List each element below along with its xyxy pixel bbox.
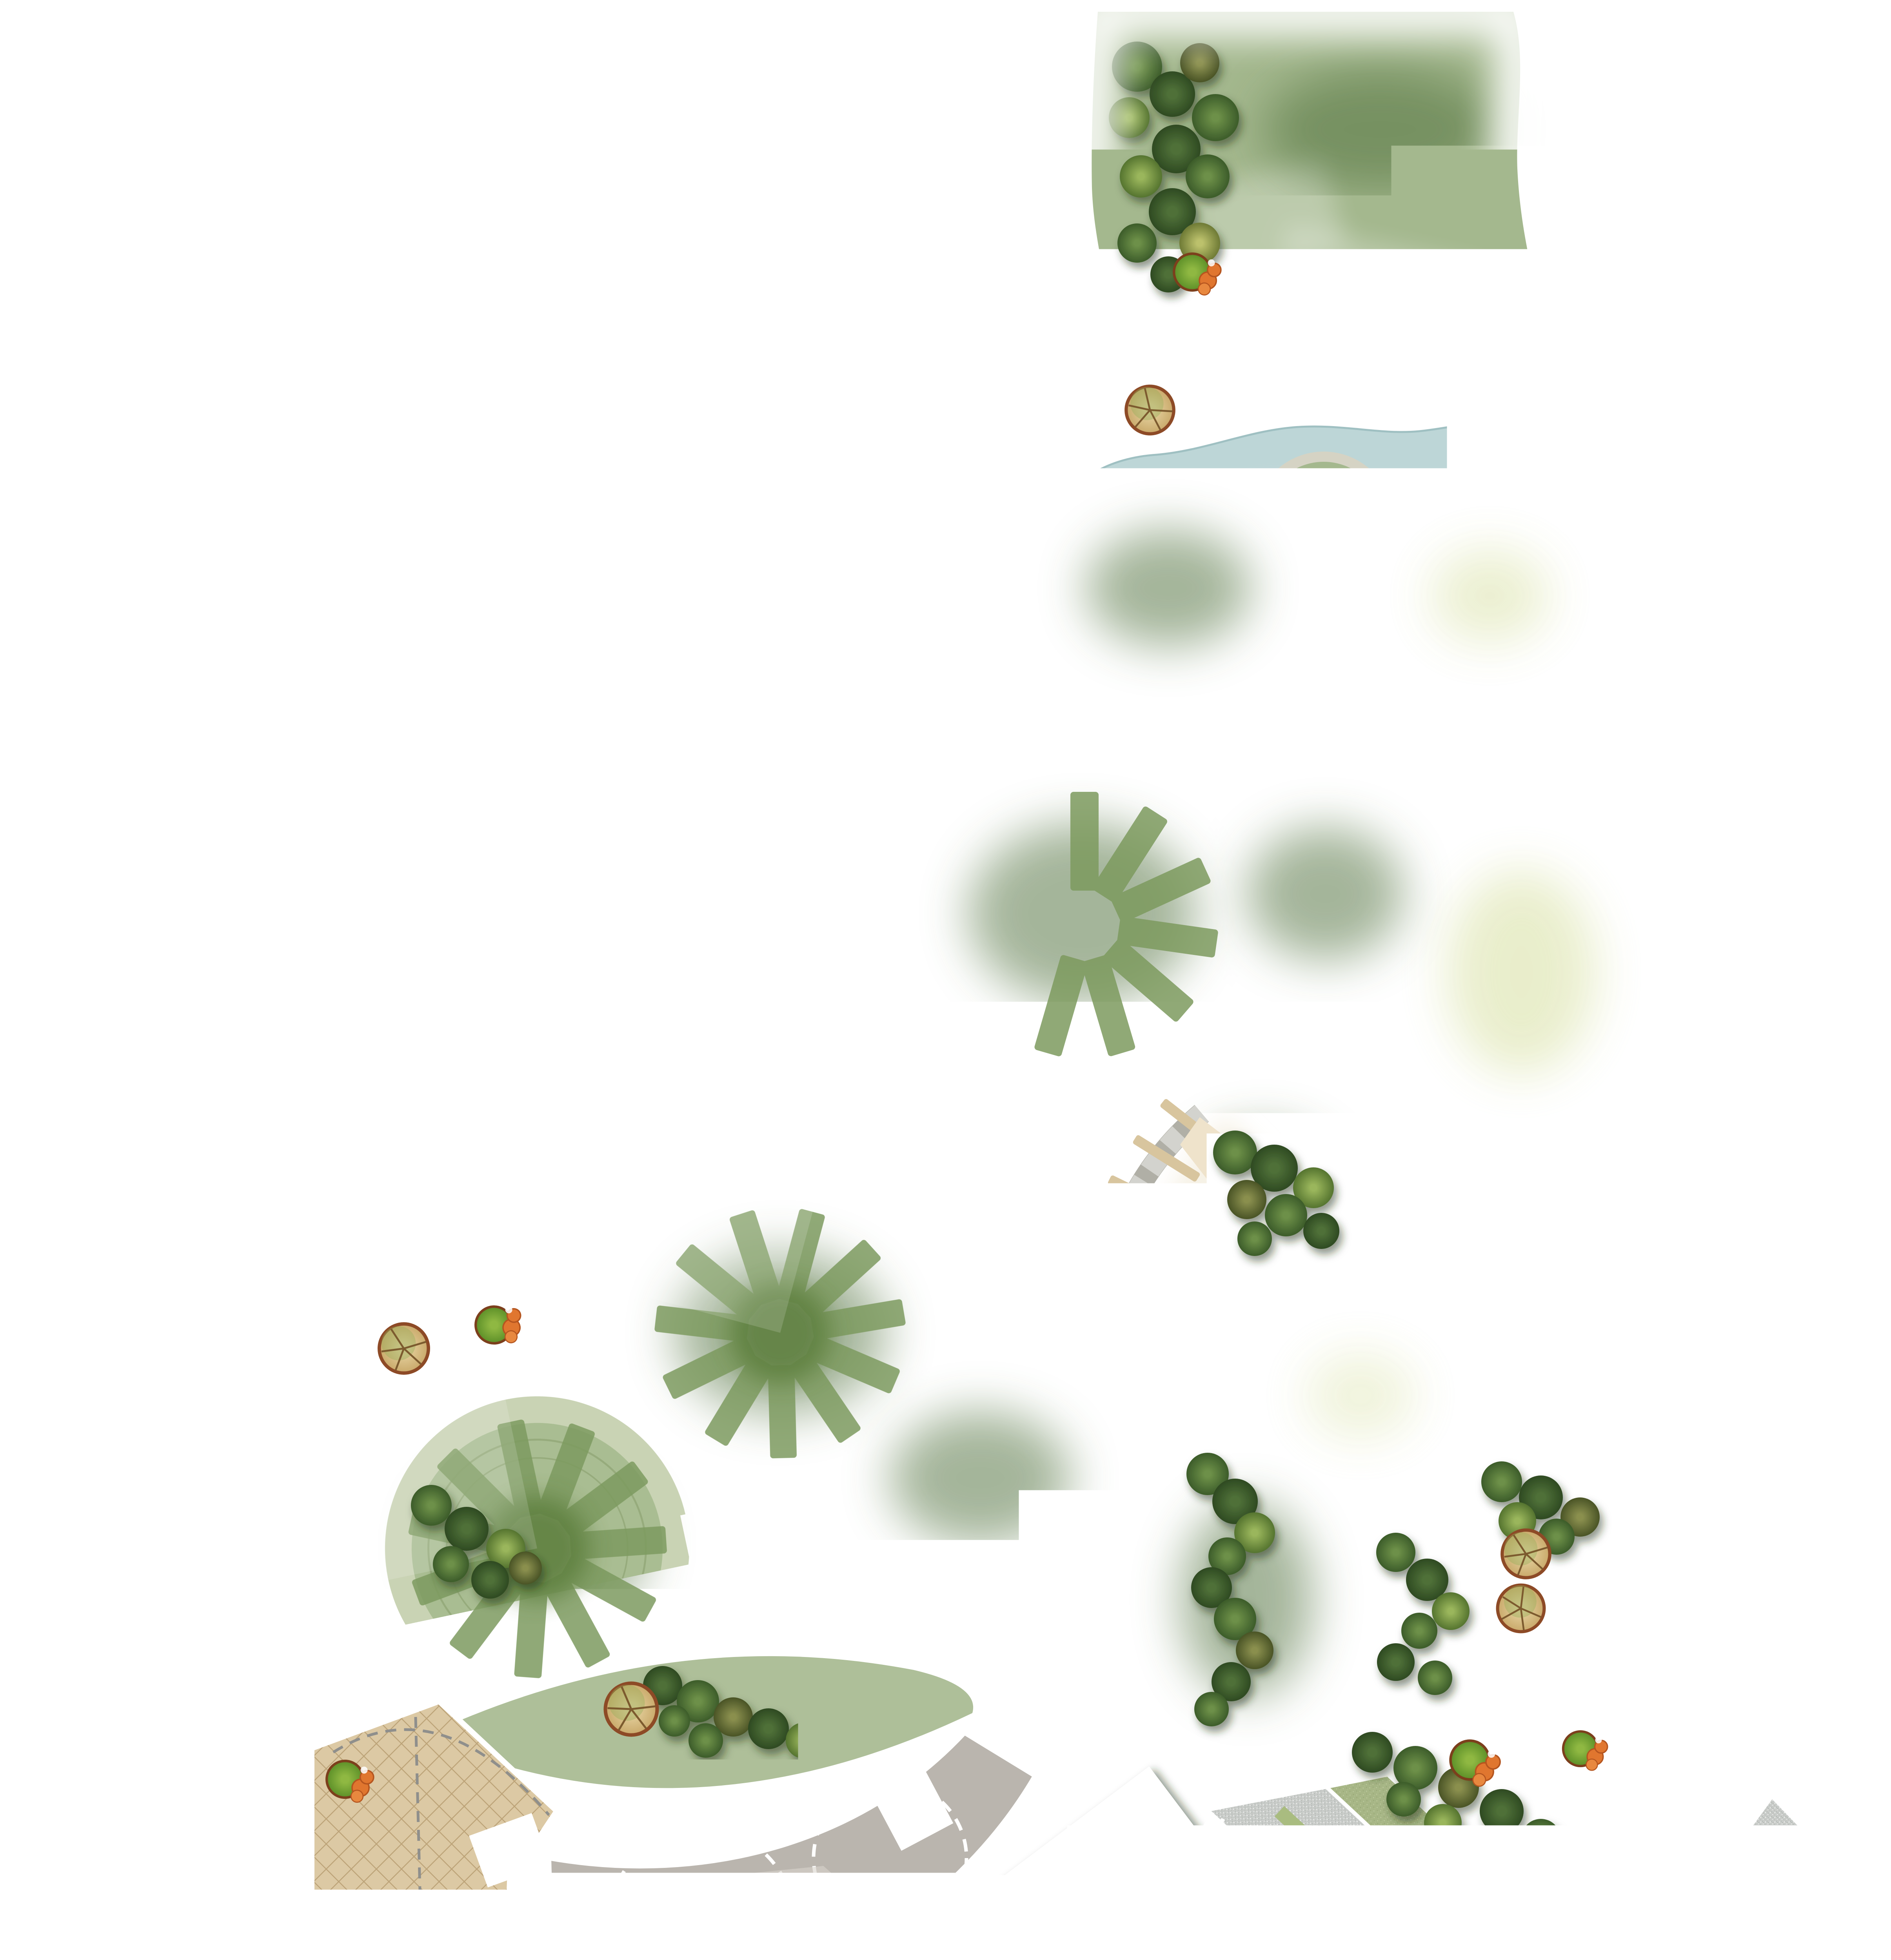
pergola-south-court (1082, 1658, 1221, 1789)
island-feature-tree (1284, 474, 1364, 554)
specimen-tree-icon (860, 1005, 915, 1060)
specimen-tree-icon (1398, 243, 1447, 292)
specimen-tree-icon (1382, 87, 1434, 138)
specimen-tree-icon (1502, 1530, 1549, 1577)
specimen-tree-icon (379, 1324, 428, 1373)
site-plan-canvas (0, 0, 1891, 1960)
